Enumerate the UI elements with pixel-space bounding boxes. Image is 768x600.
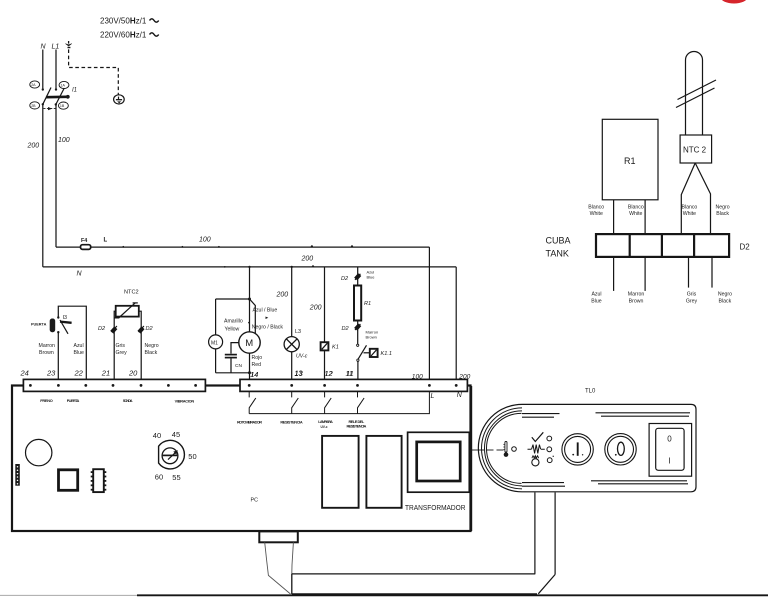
svg-text:Blue: Blue	[591, 299, 601, 305]
svg-text:L1: L1	[52, 43, 60, 50]
svg-text:K1: K1	[332, 345, 339, 351]
svg-text:F4: F4	[81, 238, 87, 244]
svg-text:Blanco: Blanco	[681, 205, 697, 211]
svg-text:Black: Black	[716, 211, 729, 217]
svg-text:Negro: Negro	[716, 205, 730, 211]
svg-text:55: 55	[172, 473, 180, 482]
svg-text:Blanco: Blanco	[588, 205, 604, 211]
svg-text:Azul / Blue: Azul / Blue	[253, 308, 278, 314]
svg-text:60: 60	[155, 472, 163, 481]
svg-text:1A: 1A	[61, 84, 66, 88]
svg-text:100: 100	[412, 373, 423, 380]
svg-text:M: M	[245, 338, 253, 349]
svg-text:200: 200	[27, 143, 40, 150]
svg-text:PUERTA: PUERTA	[67, 398, 80, 403]
svg-text:Blue: Blue	[74, 350, 84, 356]
svg-text:NTC2: NTC2	[124, 290, 139, 296]
svg-text:Blanco: Blanco	[628, 205, 644, 211]
svg-text:D2: D2	[342, 326, 350, 332]
svg-text:Black: Black	[145, 350, 158, 356]
svg-text:Rojo: Rojo	[252, 355, 263, 361]
svg-text:21: 21	[101, 369, 110, 378]
svg-text:TRANSFORMADOR: TRANSFORMADOR	[405, 503, 466, 512]
svg-text:230V/50Hz/1: 230V/50Hz/1	[100, 17, 147, 26]
svg-text:L3: L3	[295, 329, 301, 335]
svg-text:50: 50	[188, 452, 196, 461]
svg-text:Negro / Black: Negro / Black	[252, 325, 284, 331]
svg-text:40: 40	[153, 431, 161, 440]
svg-text:22: 22	[74, 369, 84, 378]
svg-text:Brown: Brown	[366, 334, 377, 339]
svg-text:RESISTENCIA: RESISTENCIA	[347, 423, 367, 428]
svg-text:Negro: Negro	[145, 343, 159, 349]
svg-text:Marron: Marron	[628, 292, 645, 298]
svg-text:L: L	[431, 393, 435, 400]
svg-text:Brown: Brown	[39, 350, 54, 356]
svg-text:200: 200	[458, 373, 470, 380]
svg-text:D2: D2	[341, 276, 349, 282]
svg-text:220V/60Hz/1: 220V/60Hz/1	[100, 31, 147, 40]
svg-text:PUERTA: PUERTA	[31, 322, 47, 326]
svg-text:White: White	[590, 211, 603, 217]
svg-text:M1: M1	[211, 340, 218, 346]
svg-text:L: L	[104, 238, 108, 244]
svg-text:11: 11	[346, 369, 354, 378]
svg-text:Azul: Azul	[591, 292, 601, 298]
svg-text:White: White	[629, 211, 642, 217]
svg-text:D2: D2	[740, 243, 751, 252]
svg-text:12: 12	[325, 369, 334, 378]
svg-text:RESISTENCIA: RESISTENCIA	[280, 420, 302, 425]
svg-text:TANK: TANK	[546, 249, 569, 259]
svg-text:Black: Black	[719, 299, 732, 305]
svg-text:White: White	[683, 211, 696, 217]
svg-text:FRENO: FRENO	[40, 398, 53, 403]
svg-text:LAMPARA: LAMPARA	[318, 419, 333, 424]
svg-text:100: 100	[58, 137, 70, 144]
svg-text:K1.1: K1.1	[381, 351, 393, 357]
svg-text:Gris: Gris	[116, 343, 126, 349]
svg-text:14: 14	[250, 370, 258, 379]
svg-text:Negro: Negro	[718, 292, 732, 298]
svg-text:R1: R1	[624, 156, 636, 166]
svg-text:20: 20	[128, 369, 138, 378]
svg-text:Amarillo: Amarillo	[224, 319, 243, 325]
svg-text:TL0: TL0	[585, 389, 596, 395]
svg-text:ROTOVIBRADOR: ROTOVIBRADOR	[237, 420, 262, 425]
svg-text:Blue: Blue	[367, 275, 376, 280]
svg-text:SONDA: SONDA	[123, 398, 133, 403]
svg-text:CUBA: CUBA	[546, 236, 571, 246]
svg-text:D2: D2	[146, 326, 154, 332]
svg-text:D2: D2	[98, 326, 106, 332]
svg-text:100: 100	[199, 237, 211, 244]
svg-text:23: 23	[46, 369, 56, 378]
svg-text:24: 24	[20, 369, 29, 378]
svg-text:PC: PC	[251, 498, 259, 504]
svg-text:1B: 1B	[60, 104, 65, 108]
svg-text:Marron: Marron	[39, 343, 56, 349]
svg-text:Azul: Azul	[74, 343, 84, 349]
svg-text:200: 200	[309, 305, 322, 312]
svg-text:I: I	[668, 457, 670, 466]
svg-text:0: 0	[667, 435, 672, 444]
svg-text:2B: 2B	[31, 104, 36, 108]
svg-text:2A: 2A	[31, 83, 36, 87]
svg-text:UV-c: UV-c	[320, 425, 327, 429]
svg-text:Grey: Grey	[686, 299, 698, 305]
svg-text:Brown: Brown	[629, 299, 644, 305]
svg-text:200: 200	[276, 292, 289, 299]
svg-text:200: 200	[301, 256, 314, 263]
svg-text:NTC 2: NTC 2	[683, 146, 707, 155]
svg-text:R1: R1	[364, 301, 371, 307]
svg-text:VIBRACION: VIBRACION	[175, 398, 195, 403]
svg-text:UV-c: UV-c	[296, 354, 308, 360]
svg-text:Gris: Gris	[687, 292, 697, 298]
svg-text:13: 13	[295, 369, 304, 378]
svg-text:I3: I3	[63, 315, 68, 321]
svg-text:Yellow: Yellow	[225, 327, 240, 333]
svg-text:Grey: Grey	[116, 350, 128, 356]
svg-text:I1: I1	[72, 88, 77, 94]
svg-text:CN: CN	[235, 363, 242, 369]
svg-text:Red: Red	[252, 362, 262, 368]
svg-text:45: 45	[172, 430, 180, 439]
